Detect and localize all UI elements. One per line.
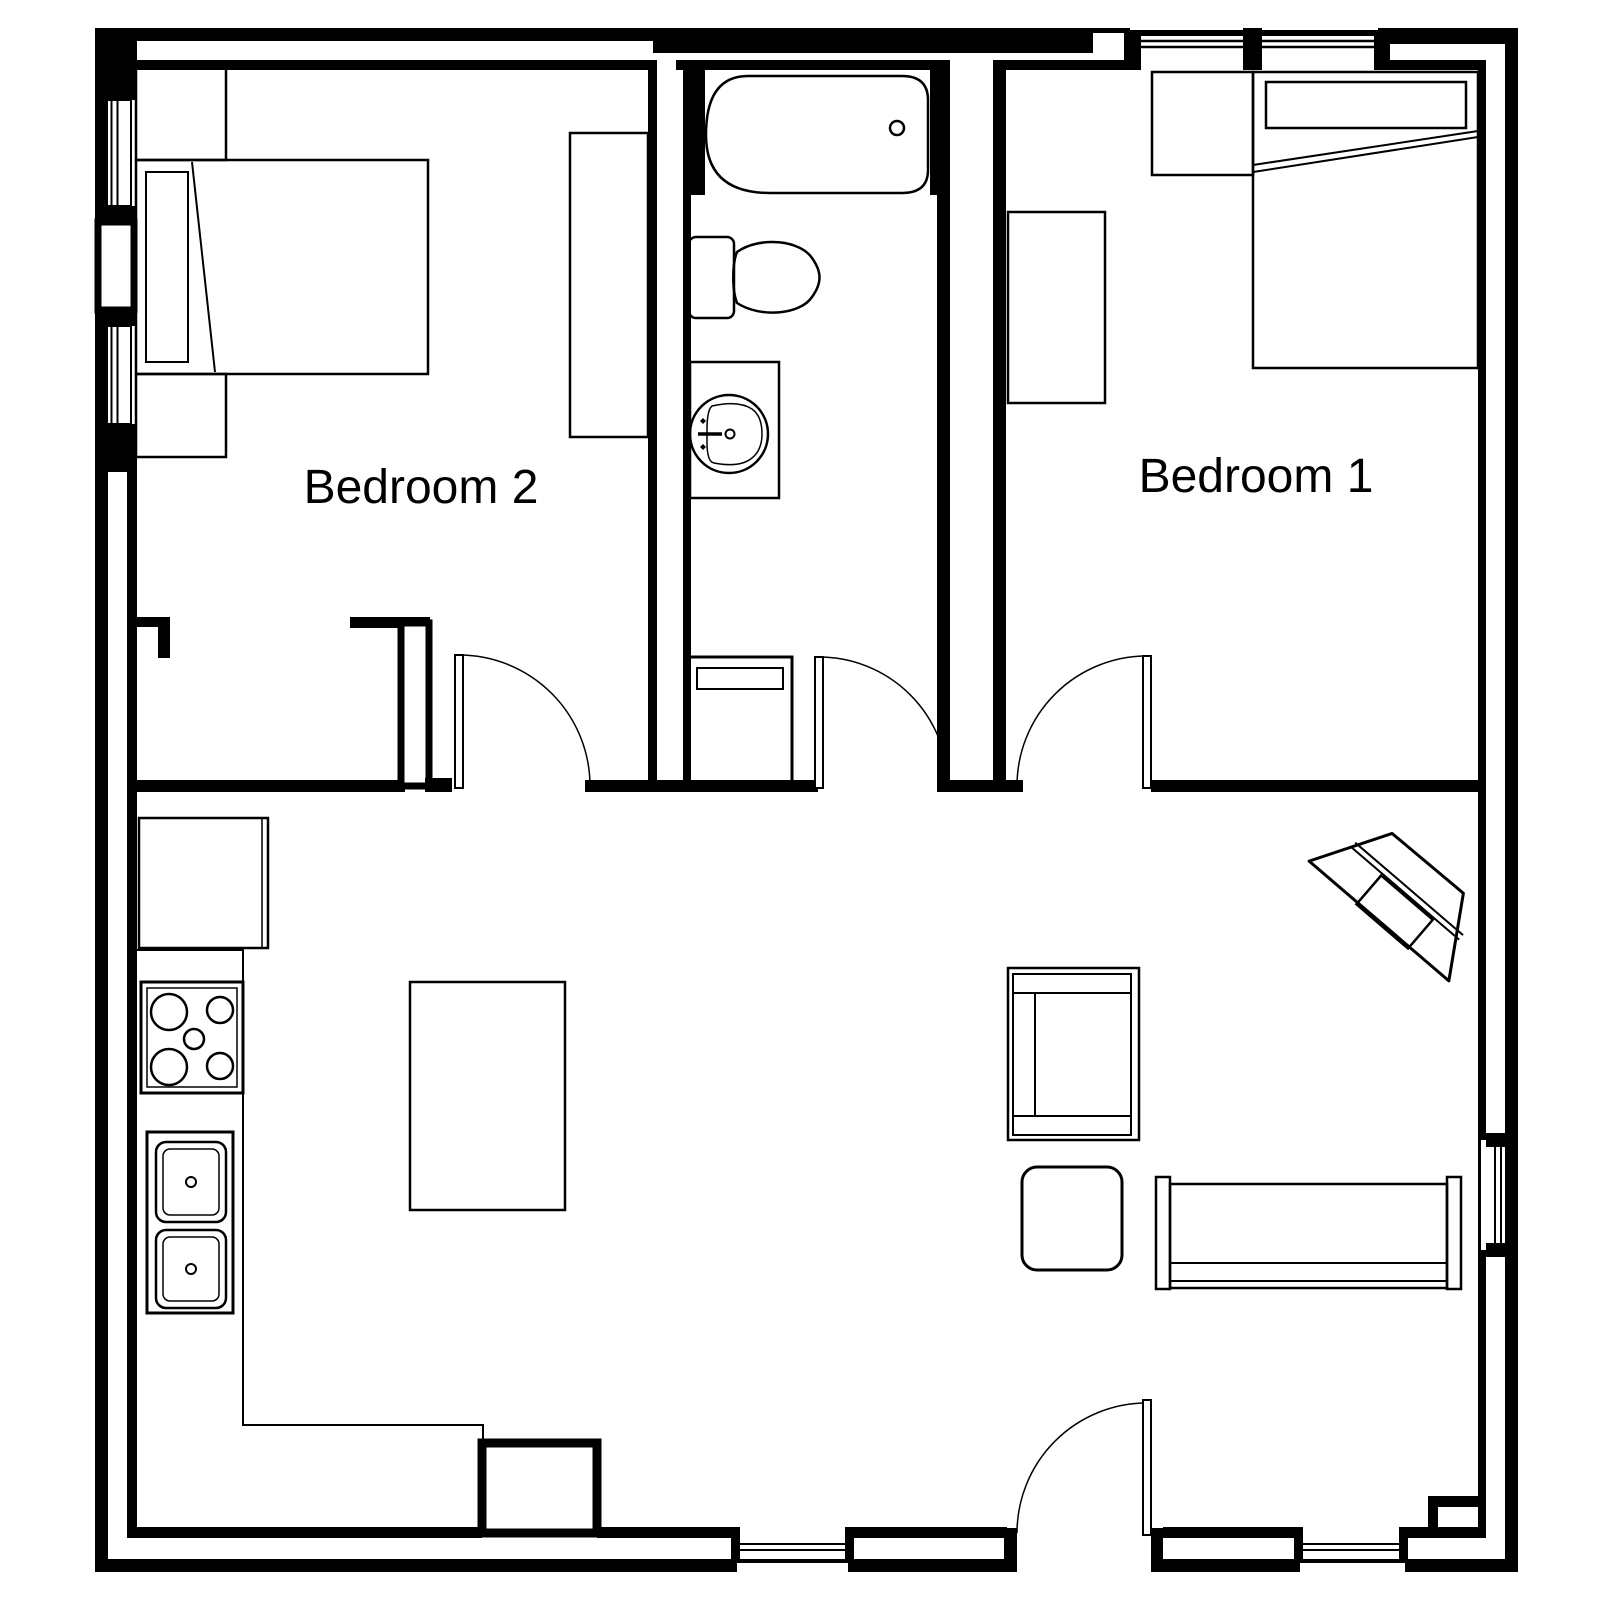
floor-plan-drawing: Bedroom 2 Bedroom 1 bbox=[0, 0, 1617, 1600]
armchair-armrest bbox=[1013, 1116, 1131, 1135]
toilet-tank bbox=[689, 237, 734, 318]
bathroom-door bbox=[815, 657, 823, 788]
burner bbox=[151, 1049, 187, 1085]
bedroom1-furniture bbox=[1008, 72, 1478, 403]
sofa bbox=[1170, 1184, 1447, 1288]
sofa-arm bbox=[1447, 1177, 1461, 1289]
bed bbox=[136, 160, 428, 374]
interior-walls bbox=[130, 62, 1486, 792]
refrigerator bbox=[139, 818, 268, 948]
bedroom1-door bbox=[1143, 656, 1151, 788]
bathroom-door-arc bbox=[819, 657, 948, 786]
bathroom-right-wall bbox=[937, 62, 950, 792]
window bbox=[98, 222, 134, 310]
burner bbox=[151, 994, 187, 1030]
pillow bbox=[1266, 82, 1466, 128]
outer-walls bbox=[95, 28, 1518, 1572]
dresser bbox=[136, 62, 226, 160]
armchair-seat bbox=[1013, 993, 1131, 1116]
corner-tv-console bbox=[1308, 803, 1498, 982]
drain bbox=[186, 1177, 196, 1187]
vanity bbox=[690, 362, 779, 498]
bedroom1-label: Bedroom 1 bbox=[1139, 450, 1374, 503]
tv-screen bbox=[1351, 847, 1459, 939]
entry-door bbox=[1143, 1400, 1151, 1535]
doors bbox=[455, 655, 1163, 1572]
nightstand bbox=[1152, 72, 1253, 175]
pillow bbox=[146, 172, 188, 362]
room-labels: Bedroom 2 Bedroom 1 bbox=[304, 450, 1374, 514]
tv-screen bbox=[1355, 843, 1463, 935]
drain bbox=[186, 1264, 196, 1274]
living-room bbox=[1008, 803, 1498, 1289]
armchair-armrest bbox=[1013, 974, 1131, 993]
bedroom2-furniture bbox=[136, 62, 648, 457]
cabinet bbox=[136, 374, 226, 457]
bedroom1-left-wall bbox=[993, 62, 1006, 792]
bed bbox=[1253, 72, 1478, 368]
kitchen bbox=[136, 818, 597, 1533]
burner bbox=[184, 1029, 204, 1049]
entry-door-arc bbox=[1017, 1403, 1147, 1533]
bathtub-drain bbox=[890, 121, 904, 135]
bedroom1-door-arc bbox=[1017, 656, 1147, 786]
counter-edge bbox=[136, 950, 483, 1443]
bed-sheet-fold bbox=[1253, 137, 1478, 172]
sink-basin bbox=[156, 1230, 226, 1308]
sink-basin bbox=[156, 1142, 226, 1222]
bathroom-fixtures bbox=[687, 76, 928, 788]
kitchen-island bbox=[410, 982, 565, 1210]
dresser bbox=[1008, 212, 1105, 403]
kitchen-peninsula bbox=[482, 1443, 597, 1533]
side-table bbox=[1022, 1167, 1122, 1270]
sofa-arm bbox=[1156, 1177, 1170, 1289]
burner bbox=[207, 997, 233, 1023]
faucet-handle bbox=[700, 418, 706, 424]
bedroom2-door bbox=[455, 655, 463, 788]
faucet-handle bbox=[700, 444, 706, 450]
faucet-knob bbox=[726, 430, 735, 439]
bedroom2-right-wall bbox=[648, 62, 657, 792]
burner bbox=[207, 1053, 233, 1079]
bedroom2-door-arc bbox=[459, 655, 590, 786]
floor-plan: Bedroom 2 Bedroom 1 bbox=[0, 0, 1617, 1600]
cabinet-drawer bbox=[697, 668, 783, 689]
wardrobe bbox=[570, 133, 648, 437]
bed-sheet-fold bbox=[1253, 131, 1478, 165]
toilet-bowl bbox=[733, 242, 819, 313]
bathroom-cabinet bbox=[687, 657, 792, 788]
bed-sheet-fold bbox=[192, 162, 215, 372]
bedroom2-label: Bedroom 2 bbox=[304, 461, 539, 514]
bottom-windows bbox=[731, 1527, 1408, 1563]
